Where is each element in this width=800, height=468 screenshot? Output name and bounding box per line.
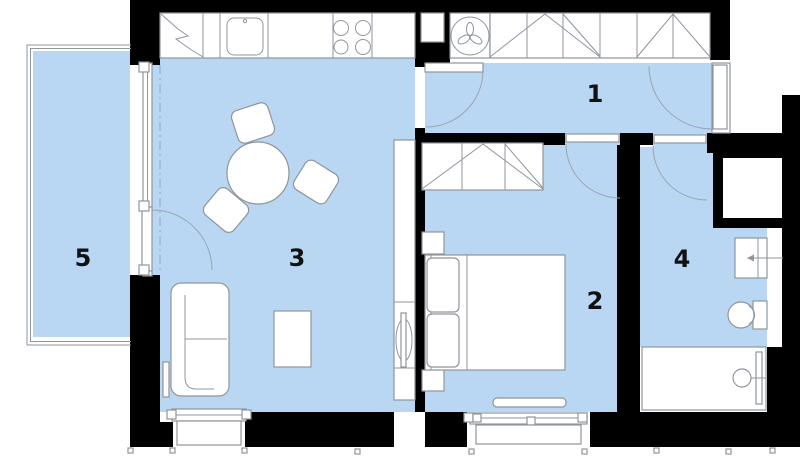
nightstand-icon xyxy=(422,370,444,391)
hallway-floor xyxy=(425,63,712,133)
nightstand-icon xyxy=(422,232,444,254)
balcony-floor xyxy=(33,51,130,337)
bathtub-icon xyxy=(642,347,766,410)
double-bed-icon xyxy=(425,255,565,370)
room-label-balcony: 5 xyxy=(67,246,99,270)
hallway-wardrobe xyxy=(490,13,710,58)
living-room-window xyxy=(167,409,251,445)
kitchen-counter xyxy=(160,13,415,58)
coffee-table-icon xyxy=(274,311,311,367)
room-label-bathroom: 4 xyxy=(666,247,698,271)
room-label-hallway: 1 xyxy=(579,82,611,106)
elevator-shaft xyxy=(723,158,782,218)
toilet-icon xyxy=(728,301,767,329)
bedroom-wardrobe xyxy=(422,143,543,190)
bedroom-window xyxy=(464,413,587,444)
tv-icon xyxy=(401,313,406,367)
floor-plan-drawing xyxy=(0,0,800,468)
radiator-icon xyxy=(163,362,169,397)
sofa-icon xyxy=(163,283,229,397)
dimension-ticks xyxy=(128,448,775,454)
rug-icon xyxy=(493,398,566,407)
room-label-bedroom: 2 xyxy=(579,289,611,313)
floor-plan: 1 2 3 4 5 xyxy=(0,0,800,468)
tv-cabinet-icon xyxy=(394,140,415,400)
balcony-door-leaf xyxy=(142,207,152,271)
room-label-living-room: 3 xyxy=(281,246,313,270)
pillow-icon xyxy=(427,258,459,312)
duct-shaft xyxy=(421,13,444,42)
washing-machine-icon xyxy=(450,13,490,58)
pillow-icon xyxy=(427,314,459,367)
washbasin-icon xyxy=(735,238,783,278)
